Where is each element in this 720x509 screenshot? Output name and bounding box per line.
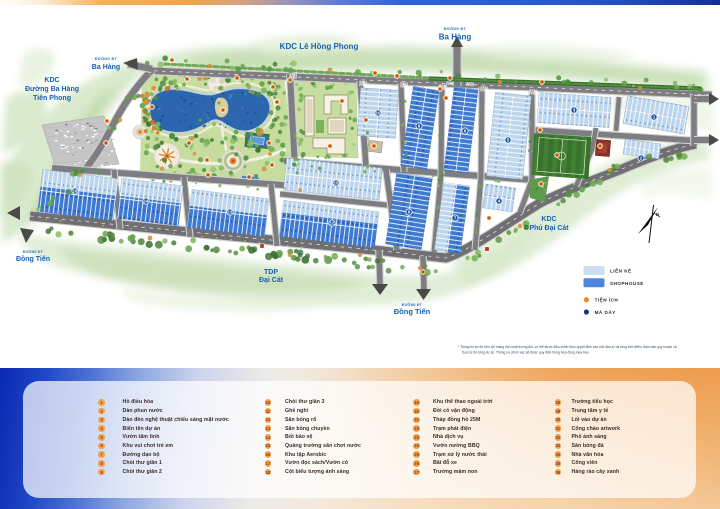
svg-text:KDC: KDC bbox=[44, 77, 59, 84]
svg-text:TIỆN ÍCH: TIỆN ÍCH bbox=[595, 296, 619, 303]
svg-text:Ba Hàng: Ba Hàng bbox=[439, 33, 472, 42]
svg-text:Phú Đại Cát: Phú Đại Cát bbox=[529, 225, 569, 232]
svg-text:thực tế thi công dự án. Thông: thực tế thi công dự án. Thông số chính x… bbox=[462, 351, 590, 355]
svg-text:N: N bbox=[656, 212, 659, 217]
svg-text:12: 12 bbox=[330, 221, 335, 226]
svg-text:Đại Cát: Đại Cát bbox=[259, 277, 284, 284]
svg-text:SHOPHOUSE: SHOPHOUSE bbox=[610, 281, 644, 286]
svg-text:* Thông tin sơ đồ trên chỉ man: * Thông tin sơ đồ trên chỉ mang tính chấ… bbox=[458, 345, 677, 349]
svg-text:Đồng Tiến: Đồng Tiến bbox=[394, 307, 431, 316]
svg-text:Đường Ba Hàng: Đường Ba Hàng bbox=[25, 86, 79, 93]
svg-text:ĐƯỜNG ĐT: ĐƯỜNG ĐT bbox=[23, 249, 43, 254]
svg-text:16: 16 bbox=[73, 189, 78, 194]
svg-text:ĐƯỜNG ĐT: ĐƯỜNG ĐT bbox=[95, 56, 117, 61]
svg-text:15: 15 bbox=[334, 181, 339, 186]
svg-text:KDC Lê Hồng Phong: KDC Lê Hồng Phong bbox=[280, 42, 359, 51]
svg-text:13: 13 bbox=[228, 210, 233, 215]
svg-text:KDC: KDC bbox=[541, 216, 556, 223]
svg-text:Đồng Tiến: Đồng Tiến bbox=[16, 254, 50, 263]
svg-text:Tiên Phong: Tiên Phong bbox=[33, 95, 71, 102]
svg-text:10: 10 bbox=[376, 111, 381, 116]
svg-text:MÃ DÃY: MÃ DÃY bbox=[595, 309, 616, 315]
svg-text:TDP: TDP bbox=[264, 269, 278, 276]
svg-text:LIÊN KẾ: LIÊN KẾ bbox=[610, 267, 632, 274]
svg-text:ĐƯỜNG ĐT: ĐƯỜNG ĐT bbox=[444, 26, 466, 31]
svg-text:14: 14 bbox=[144, 199, 149, 204]
svg-text:Ba Hàng: Ba Hàng bbox=[92, 64, 120, 71]
